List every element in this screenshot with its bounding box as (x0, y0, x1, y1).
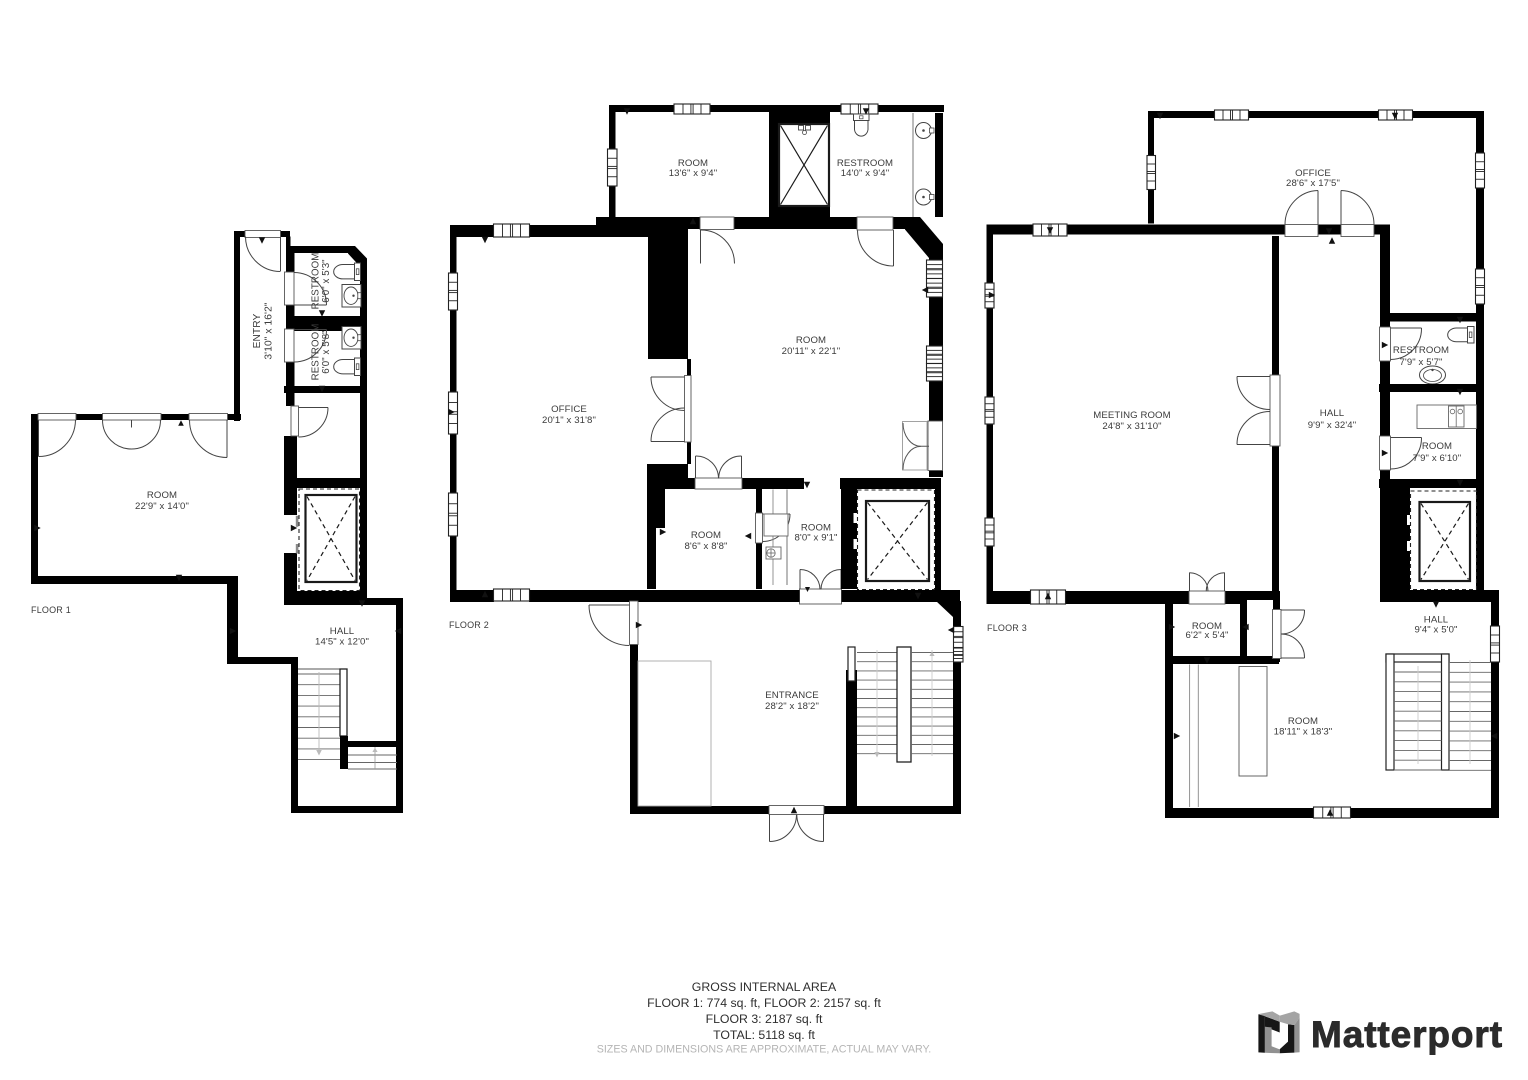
svg-text:7'9" x 5'7": 7'9" x 5'7" (1399, 357, 1442, 368)
svg-text:7'9" x 6'10": 7'9" x 6'10" (1413, 453, 1461, 464)
svg-text:ROOM: ROOM (1422, 441, 1452, 452)
svg-text:ROOM: ROOM (796, 335, 826, 346)
svg-text:8'6" x 8'8": 8'6" x 8'8" (684, 541, 727, 552)
svg-text:6'0" x 5'8": 6'0" x 5'8" (321, 330, 332, 374)
svg-text:Matterport: Matterport (1311, 1014, 1503, 1055)
svg-text:OFFICE: OFFICE (551, 404, 587, 415)
svg-text:ENTRY: ENTRY (252, 313, 263, 348)
svg-text:14'0" x 9'4": 14'0" x 9'4" (841, 168, 889, 179)
svg-text:HALL: HALL (1320, 408, 1345, 419)
svg-text:FLOOR 3: 2187 sq. ft: FLOOR 3: 2187 sq. ft (706, 1012, 823, 1026)
svg-text:ENTRANCE: ENTRANCE (765, 690, 819, 701)
svg-text:20'1" x 31'8": 20'1" x 31'8" (542, 415, 596, 426)
svg-text:FLOOR 1: FLOOR 1 (31, 605, 71, 615)
svg-text:6'0" x 5'3": 6'0" x 5'3" (321, 259, 332, 303)
svg-text:ROOM: ROOM (1288, 716, 1318, 727)
svg-text:9'4" x 5'0": 9'4" x 5'0" (1414, 625, 1457, 636)
svg-text:FLOOR 2: FLOOR 2 (449, 620, 489, 630)
svg-text:14'5" x 12'0": 14'5" x 12'0" (315, 637, 369, 648)
svg-text:6'2" x 5'4": 6'2" x 5'4" (1185, 630, 1228, 641)
svg-text:13'6" x 9'4": 13'6" x 9'4" (669, 168, 717, 179)
svg-text:FLOOR 1: 774 sq. ft, FLOOR 2:: FLOOR 1: 774 sq. ft, FLOOR 2: 2157 sq. f… (647, 996, 881, 1010)
svg-text:TOTAL: 5118 sq. ft: TOTAL: 5118 sq. ft (713, 1028, 815, 1042)
svg-text:28'2" x 18'2": 28'2" x 18'2" (765, 701, 819, 712)
svg-text:RESTROOM: RESTROOM (310, 324, 321, 381)
svg-text:20'11" x 22'1": 20'11" x 22'1" (782, 346, 841, 357)
svg-text:HALL: HALL (330, 626, 355, 637)
svg-text:24'8" x 31'10": 24'8" x 31'10" (1102, 421, 1161, 432)
svg-text:8'0" x 9'1": 8'0" x 9'1" (794, 533, 837, 544)
svg-text:SIZES AND DIMENSIONS ARE APPRO: SIZES AND DIMENSIONS ARE APPROXIMATE, AC… (597, 1044, 932, 1056)
svg-text:22'9" x 14'0": 22'9" x 14'0" (135, 501, 189, 512)
svg-text:ROOM: ROOM (691, 530, 721, 541)
svg-text:9'9" x 32'4": 9'9" x 32'4" (1308, 420, 1356, 431)
svg-text:18'11" x 18'3": 18'11" x 18'3" (1274, 727, 1333, 738)
svg-text:RESTROOM: RESTROOM (1393, 345, 1449, 356)
svg-text:MEETING ROOM: MEETING ROOM (1093, 410, 1170, 421)
svg-text:28'6" x 17'5": 28'6" x 17'5" (1286, 178, 1340, 189)
svg-text:RESTROOM: RESTROOM (310, 253, 321, 310)
svg-text:FLOOR 3: FLOOR 3 (987, 623, 1027, 633)
svg-text:3'10" x 16'2": 3'10" x 16'2" (263, 302, 274, 359)
svg-text:GROSS INTERNAL AREA: GROSS INTERNAL AREA (692, 980, 837, 994)
svg-text:ROOM: ROOM (147, 490, 177, 501)
